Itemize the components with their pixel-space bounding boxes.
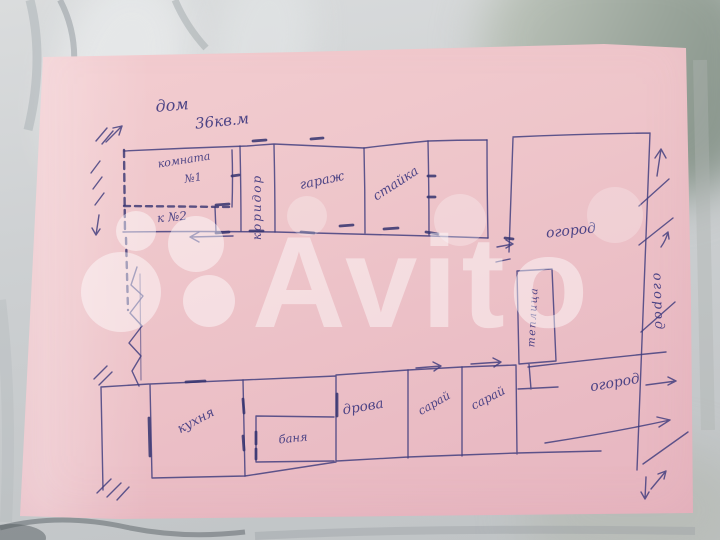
outbuilding-walls [94,365,601,500]
label-house-title: дом [155,94,190,116]
label-garden-right: огород [649,272,666,331]
label-room1-number: №1 [183,170,202,186]
label-room2: к №2 [156,209,187,226]
floorplan-drawing [0,0,720,540]
photo-scene: дом 36кв.м комната №1 к №2 коридор гараж… [0,0,720,540]
label-corridor: коридор [250,174,264,240]
